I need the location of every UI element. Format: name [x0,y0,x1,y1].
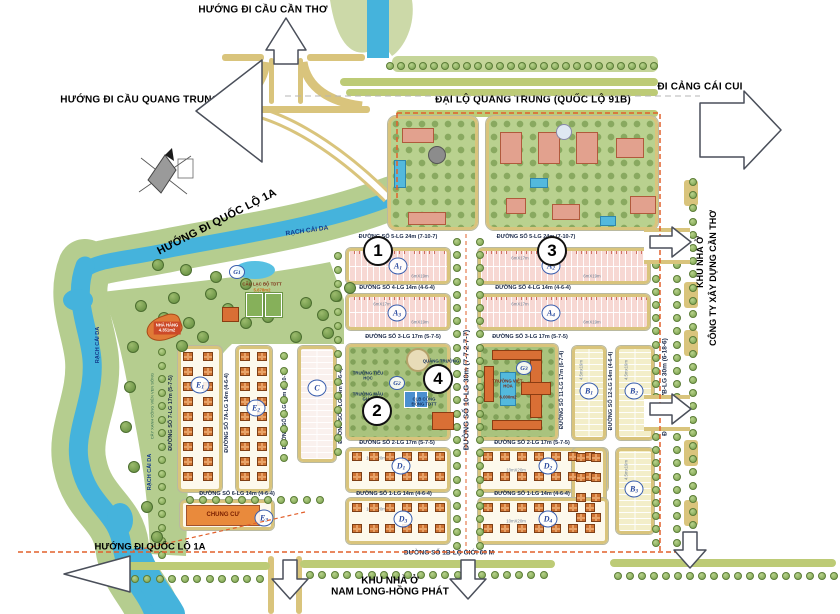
master-plan-map: CHUNG CƯ NHÀ HÀNG 4.351m2 ĐƯỜNG SỐ 5-LG … [0,0,840,614]
dir-nh1a-bottom: HƯỚNG ĐI QUỐC LỘ 1A [95,542,206,553]
neighbor-south-2: NAM LONG-HỒNG PHÁT [331,587,449,598]
arrow-south-icon [674,532,706,568]
arrow-southwest-icon [64,556,130,592]
arrow-west-icon [196,60,262,162]
arrow-north-icon [266,18,306,64]
project-boundary-dash [397,113,660,552]
neighbor-south-1: KHU NHÀ Ở [361,576,418,587]
arrow-south-icon [450,560,486,599]
arrow-east-stub-icon [650,394,691,424]
arrow-east-stub-icon [650,227,691,257]
arrow-south-icon [272,560,308,599]
overlay-layer [0,0,840,614]
arrow-east-port-icon [700,91,781,169]
